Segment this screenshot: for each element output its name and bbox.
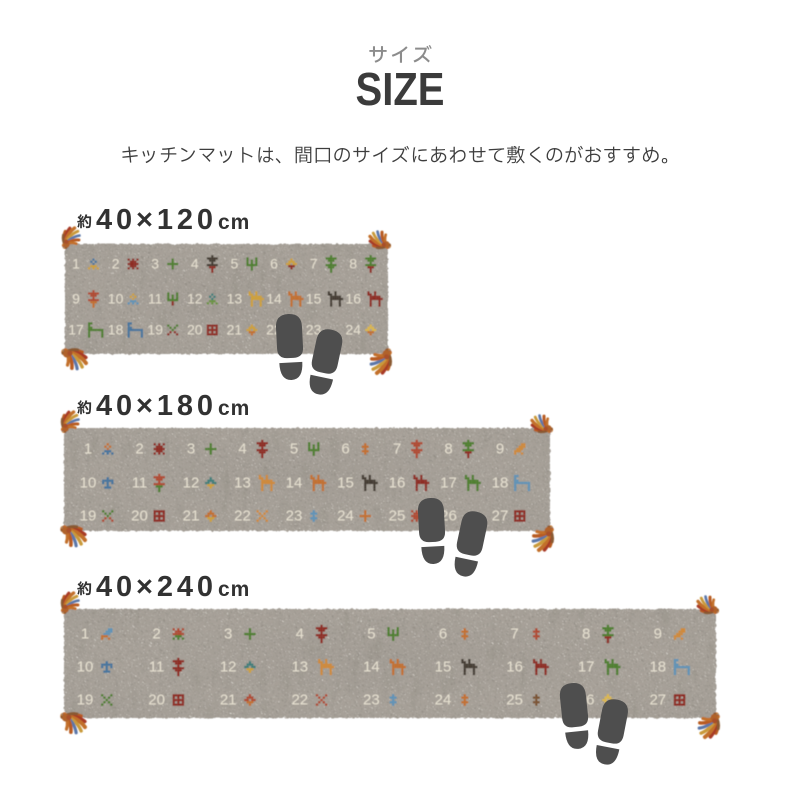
svg-text:12: 12 [187, 291, 203, 307]
svg-text:20: 20 [148, 692, 165, 709]
svg-text:4: 4 [191, 256, 199, 272]
svg-text:18: 18 [108, 322, 124, 338]
svg-text:17: 17 [68, 322, 84, 338]
svg-text:24: 24 [337, 508, 354, 525]
svg-text:15: 15 [435, 659, 452, 676]
svg-text:8: 8 [349, 256, 357, 272]
svg-text:1: 1 [72, 256, 80, 272]
svg-text:cm: cm [218, 397, 250, 420]
svg-text:11: 11 [148, 291, 163, 307]
svg-text:10: 10 [80, 475, 97, 492]
svg-text:2: 2 [112, 256, 120, 272]
svg-text:1: 1 [81, 626, 89, 643]
svg-text:25: 25 [506, 692, 523, 709]
svg-text:12: 12 [220, 659, 237, 676]
svg-text:7: 7 [393, 441, 401, 458]
svg-text:8: 8 [444, 441, 452, 458]
svg-text:10: 10 [77, 659, 94, 676]
svg-text:6: 6 [439, 626, 447, 643]
svg-text:2: 2 [135, 441, 143, 458]
svg-text:1: 1 [84, 441, 92, 458]
svg-text:6: 6 [341, 441, 349, 458]
svg-text:24: 24 [345, 322, 361, 338]
svg-text:7: 7 [510, 626, 518, 643]
svg-text:13: 13 [291, 659, 308, 676]
svg-text:9: 9 [654, 626, 662, 643]
svg-text:15: 15 [306, 291, 322, 307]
svg-text:14: 14 [266, 291, 282, 307]
svg-text:17: 17 [440, 475, 457, 492]
svg-text:16: 16 [389, 475, 406, 492]
svg-text:3: 3 [151, 256, 159, 272]
svg-text:7: 7 [310, 256, 318, 272]
svg-text:3: 3 [224, 626, 232, 643]
svg-text:19: 19 [77, 692, 94, 709]
svg-text:15: 15 [337, 475, 354, 492]
svg-text:11: 11 [132, 475, 148, 492]
svg-text:cm: cm [218, 578, 250, 601]
svg-text:21: 21 [227, 322, 243, 338]
svg-text:20: 20 [131, 508, 148, 525]
svg-text:22: 22 [291, 692, 308, 709]
svg-text:14: 14 [363, 659, 380, 676]
svg-text:21: 21 [220, 692, 237, 709]
svg-text:11: 11 [149, 659, 165, 676]
svg-text:19: 19 [80, 508, 97, 525]
svg-text:3: 3 [187, 441, 195, 458]
svg-text:25: 25 [389, 508, 406, 525]
svg-text:2: 2 [152, 626, 160, 643]
svg-text:4: 4 [238, 441, 246, 458]
svg-text:6: 6 [270, 256, 278, 272]
svg-text:9: 9 [496, 441, 504, 458]
svg-text:8: 8 [582, 626, 590, 643]
svg-text:22: 22 [234, 508, 251, 525]
svg-text:19: 19 [147, 322, 163, 338]
svg-text:24: 24 [435, 692, 452, 709]
svg-text:12: 12 [183, 475, 200, 492]
svg-text:5: 5 [290, 441, 298, 458]
svg-text:20: 20 [187, 322, 203, 338]
svg-text:23: 23 [363, 692, 380, 709]
svg-text:21: 21 [183, 508, 200, 525]
svg-text:9: 9 [72, 291, 80, 307]
svg-text:4: 4 [296, 626, 304, 643]
svg-text:40×240: 40×240 [96, 571, 214, 603]
svg-text:16: 16 [345, 291, 361, 307]
svg-text:5: 5 [367, 626, 375, 643]
svg-text:40×120: 40×120 [96, 204, 214, 236]
svg-text:18: 18 [649, 659, 666, 676]
svg-text:40×180: 40×180 [96, 390, 214, 422]
svg-text:27: 27 [492, 508, 509, 525]
svg-text:16: 16 [506, 659, 523, 676]
svg-text:13: 13 [234, 475, 251, 492]
svg-text:23: 23 [286, 508, 303, 525]
svg-text:5: 5 [231, 256, 239, 272]
svg-text:14: 14 [286, 475, 303, 492]
svg-text:27: 27 [649, 692, 666, 709]
svg-text:10: 10 [108, 291, 124, 307]
svg-text:18: 18 [492, 475, 509, 492]
svg-text:cm: cm [218, 211, 250, 234]
svg-text:SIZE: SIZE [356, 63, 445, 115]
svg-text:17: 17 [578, 659, 595, 676]
svg-text:13: 13 [227, 291, 243, 307]
